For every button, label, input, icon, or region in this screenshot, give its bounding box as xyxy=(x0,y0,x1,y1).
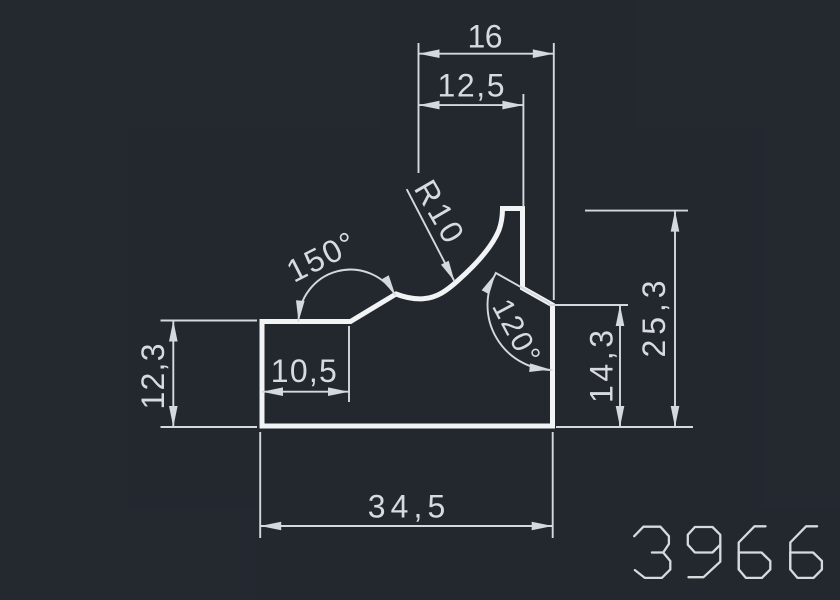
svg-text:10,5: 10,5 xyxy=(271,353,337,389)
svg-text:34,5: 34,5 xyxy=(368,489,446,525)
svg-text:12,5: 12,5 xyxy=(438,68,505,104)
svg-text:14,3: 14,3 xyxy=(584,330,620,403)
svg-text:12,3: 12,3 xyxy=(135,344,171,410)
svg-text:16: 16 xyxy=(468,19,503,55)
svg-text:25,3: 25,3 xyxy=(636,281,672,358)
